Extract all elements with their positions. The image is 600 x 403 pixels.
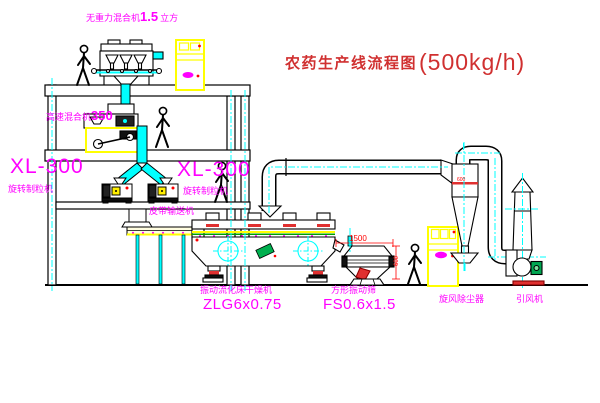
vibrating-screen <box>336 236 400 285</box>
drawing-title: 农药生产线流程图 (500kg/h) <box>285 49 525 76</box>
dim-screen-width: 600 <box>394 255 400 266</box>
cyclone-inlet-diffuser <box>441 160 453 184</box>
roof-slab <box>45 85 250 96</box>
conveyor-leg <box>159 235 162 284</box>
discharge-chute <box>129 209 146 222</box>
dryer-leg <box>203 266 223 282</box>
label-granulator-left-model: XL-300 <box>10 156 84 177</box>
cyclone-dust-collector <box>451 142 478 272</box>
fluid-bed-dryer <box>192 213 344 282</box>
exhaust-duct <box>259 158 453 217</box>
control-cabinet-top <box>176 40 204 90</box>
conveyor-leg <box>136 235 139 284</box>
dryer-leg <box>307 266 327 282</box>
label-cyclone: 旋风除尘器 <box>439 295 484 304</box>
label-gravity-mixer: 无重力混合机 1.5 立方 <box>86 10 178 23</box>
person-figure <box>156 107 169 147</box>
indicator-dot <box>196 239 199 242</box>
cad-drawing: 1500 600 600 农药生产线流程图 (500kg/h) 无重力混合机 1… <box>0 0 600 403</box>
label-granulator-left-name: 旋转制粒机 <box>8 185 53 194</box>
dim-cyclone: 600 <box>457 177 466 183</box>
belt-conveyor <box>122 209 197 284</box>
drawing-title-capacity: (500kg/h) <box>419 49 525 76</box>
mixer-inlet-pipe <box>153 52 163 59</box>
label-granulator-right-model: XL-300 <box>177 159 251 180</box>
label-dryer-name: 振动流化床干燥机 <box>200 286 272 295</box>
label-screen-model: FS0.6x1.5 <box>323 297 396 312</box>
indicator-dot <box>198 45 201 48</box>
fan-volute <box>513 258 531 276</box>
drawing-title-text: 农药生产线流程图 <box>285 52 417 76</box>
gravity-free-mixer <box>92 40 164 85</box>
duct-funnel <box>259 206 281 217</box>
label-fan: 引风机 <box>516 295 543 304</box>
conveyor-leg <box>182 235 185 284</box>
cabinet-text-mark <box>435 252 447 258</box>
label-belt-conveyor: 皮带输送机 <box>149 207 194 216</box>
label-granulator-right-name: 旋转制粒机 <box>183 187 228 196</box>
label-dryer-model: ZLG6x0.75 <box>203 297 282 312</box>
label-high-speed-mixer: 高速混合机 350 <box>46 109 113 122</box>
indicator-dot <box>453 231 456 234</box>
indicator-dot <box>197 75 200 78</box>
person-figure <box>77 45 90 85</box>
cabinet-text-mark <box>183 72 194 78</box>
dim-screen-length: 1500 <box>349 234 367 243</box>
fan-base <box>513 281 544 285</box>
person-figure <box>408 244 421 284</box>
granulator-right <box>148 178 178 203</box>
label-screen-name: 方形振动筛 <box>331 286 376 295</box>
